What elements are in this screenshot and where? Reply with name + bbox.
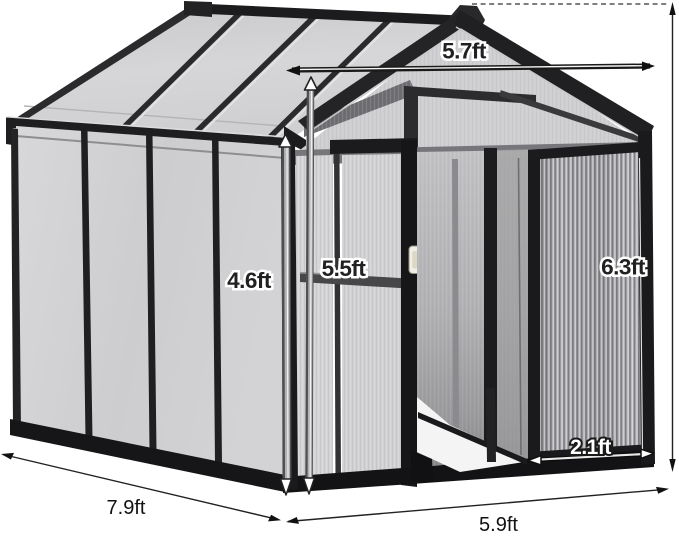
- svg-text:5.9ft: 5.9ft: [479, 514, 518, 536]
- svg-text:4.6ft: 4.6ft: [227, 268, 272, 293]
- svg-text:2.1ft: 2.1ft: [570, 436, 611, 459]
- svg-text:5.5ft: 5.5ft: [322, 256, 367, 281]
- svg-text:7.9ft: 7.9ft: [107, 497, 146, 519]
- svg-text:6.3ft: 6.3ft: [601, 255, 646, 280]
- svg-text:5.7ft: 5.7ft: [442, 39, 487, 64]
